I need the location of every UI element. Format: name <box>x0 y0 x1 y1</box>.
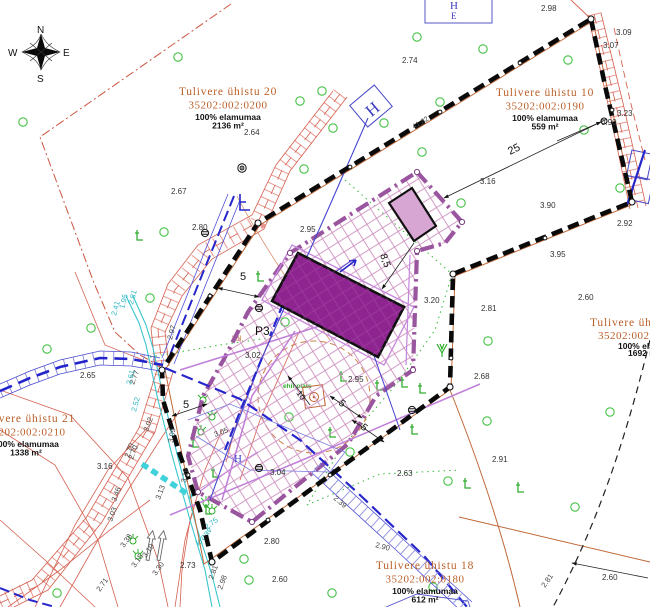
svg-text:N: N <box>37 25 44 36</box>
svg-text:559 m²: 559 m² <box>532 122 559 132</box>
svg-text:35202:002:0180: 35202:002:0180 <box>385 574 464 586</box>
svg-text:2.63: 2.63 <box>397 469 413 478</box>
svg-text:5: 5 <box>240 271 246 283</box>
svg-text:W: W <box>8 48 18 59</box>
svg-text:2.73: 2.73 <box>180 561 196 570</box>
svg-text:3.16: 3.16 <box>97 462 113 471</box>
svg-text:3.95: 3.95 <box>550 250 566 259</box>
svg-text:2.98: 2.98 <box>541 4 557 13</box>
svg-text:Tulivere ühistu 21: Tulivere ühistu 21 <box>0 413 75 425</box>
svg-text:3.23: 3.23 <box>617 109 633 118</box>
svg-text:2.64: 2.64 <box>244 128 260 137</box>
svg-text:3.16: 3.16 <box>480 177 496 186</box>
svg-text:E: E <box>63 48 70 59</box>
svg-text:3.20: 3.20 <box>424 296 440 305</box>
svg-text:1692 m²: 1692 m² <box>628 348 650 358</box>
svg-text:2.60: 2.60 <box>272 575 288 584</box>
svg-text:2.95: 2.95 <box>300 225 316 234</box>
svg-text:0.90: 0.90 <box>601 118 617 127</box>
svg-text:3.90: 3.90 <box>540 201 556 210</box>
svg-text:2.91: 2.91 <box>492 455 508 464</box>
svg-text:2.92: 2.92 <box>617 219 633 228</box>
svg-text:2.65: 2.65 <box>80 371 96 380</box>
svg-text:2136 m²: 2136 m² <box>212 121 244 131</box>
svg-text:2.80: 2.80 <box>192 223 208 232</box>
svg-text:Tulivere ühistu 20: Tulivere ühistu 20 <box>179 86 277 98</box>
svg-text:2.60: 2.60 <box>602 573 618 582</box>
svg-text:2.60: 2.60 <box>578 293 594 302</box>
svg-text:Tulivere üh: Tulivere üh <box>590 317 650 329</box>
svg-text:2.74: 2.74 <box>402 56 418 65</box>
svg-text:E: E <box>451 11 457 21</box>
svg-text:5: 5 <box>183 399 189 411</box>
svg-text:3.02: 3.02 <box>245 351 261 360</box>
svg-text:Tulivere ühistu 18: Tulivere ühistu 18 <box>376 560 474 572</box>
svg-text:2.68: 2.68 <box>474 372 490 381</box>
svg-text:3.07: 3.07 <box>603 41 619 50</box>
svg-text:612 m²: 612 m² <box>412 595 439 605</box>
svg-text:H: H <box>234 453 242 465</box>
svg-text:S: S <box>37 74 44 85</box>
svg-text:2.67: 2.67 <box>171 187 187 196</box>
svg-text:1338 m²: 1338 m² <box>10 448 42 458</box>
svg-text:35202:002:0210: 35202:002:0210 <box>0 427 66 439</box>
svg-text:2.95: 2.95 <box>348 375 364 384</box>
svg-text:Tulivere ühistu 10: Tulivere ühistu 10 <box>496 87 594 99</box>
svg-text:3.09: 3.09 <box>616 28 632 37</box>
svg-text:2.80: 2.80 <box>264 537 280 546</box>
svg-text:3.04: 3.04 <box>270 468 286 477</box>
svg-text:2.81: 2.81 <box>481 304 497 313</box>
svg-text:P3: P3 <box>255 324 270 338</box>
svg-text:35202:002:0200: 35202:002:0200 <box>188 100 267 112</box>
svg-text:35202:002:0190: 35202:002:0190 <box>505 101 584 113</box>
